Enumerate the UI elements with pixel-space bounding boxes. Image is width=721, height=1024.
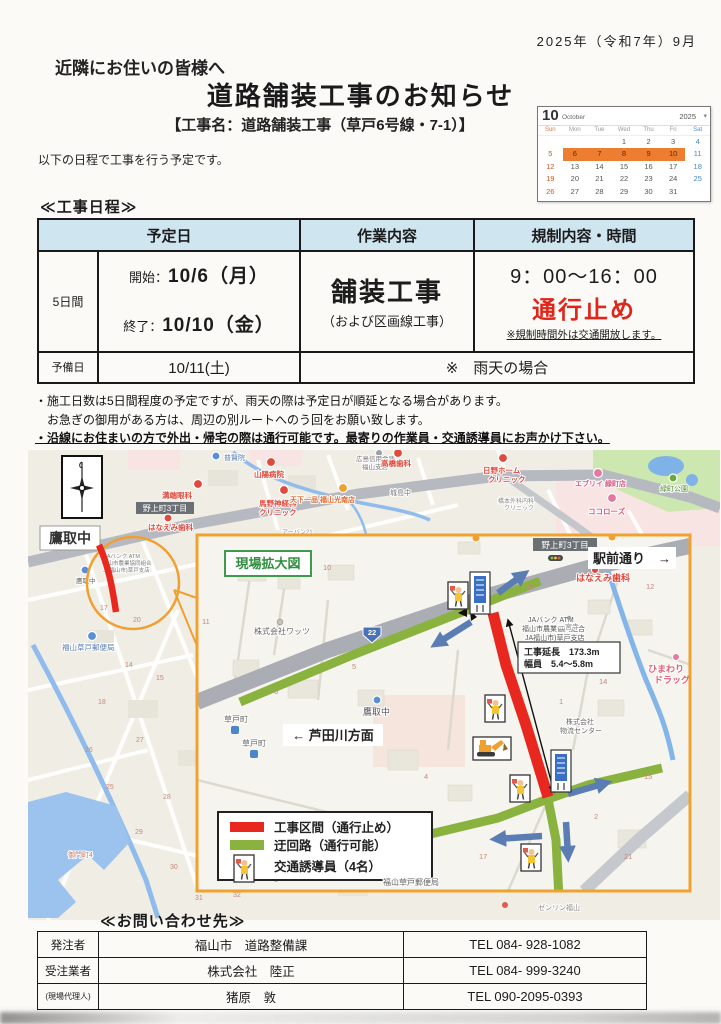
calendar-date: 17 [661, 161, 686, 173]
note-line: お急ぎの御用がある方は、周辺の別ルートへのう回をお願い致します。 [35, 411, 695, 430]
poi-label: 草戸町 [224, 714, 248, 724]
traffic-guard-icon [448, 582, 468, 609]
calendar-date: 15 [612, 161, 637, 173]
poi-label: エブリイ 緑町店 [575, 479, 626, 488]
svg-text:5: 5 [352, 662, 356, 671]
document-date: 2025年（令和7年）9月 [537, 31, 697, 50]
calendar-header: 10 October 2025 ▾ [538, 107, 710, 126]
poi-label: 城島中 [390, 488, 411, 497]
svg-text:21: 21 [624, 852, 632, 861]
compass-icon [62, 456, 102, 518]
svg-text:22: 22 [368, 628, 376, 637]
calendar-date: 22 [612, 173, 637, 185]
calendar-date-highlighted: 10 [661, 148, 686, 160]
svg-text:1: 1 [559, 697, 563, 706]
svg-text:14: 14 [599, 677, 607, 686]
inset-title-box: 現場拡大図 [225, 551, 311, 576]
road-width: 幅員 5.4～5.8m [524, 658, 593, 669]
calendar-date: 27 [563, 186, 588, 198]
svg-text:20: 20 [133, 617, 141, 624]
end-label: 終了： [123, 319, 162, 334]
traffic-guard-icon [485, 695, 505, 722]
calendar-month-number: 10 [542, 107, 559, 124]
contact-role: 受注業者 [38, 958, 99, 984]
calendar-date: 21 [587, 173, 612, 185]
poi-label: 株式会社ワッツ [254, 626, 310, 636]
calendar-date: 18 [685, 161, 710, 173]
bus-stop-icon [250, 750, 258, 758]
commercial-zone [128, 450, 180, 470]
poi-label: ゼンリン福山 [538, 903, 580, 912]
contact-tel: TEL 084- 999-3240 [404, 958, 647, 984]
svg-text:26: 26 [85, 747, 93, 754]
legend-guard-icon [234, 855, 254, 882]
contact-tel: TEL 084- 928-1082 [404, 932, 647, 958]
svg-text:27: 27 [136, 737, 144, 744]
poi-label: 物流センター [560, 726, 602, 735]
contact-row: (現場代理人) 猪原 敦 TEL 090-2095-0393 [38, 984, 647, 1010]
poi-label: 福山草戸郵便局 [62, 642, 115, 652]
svg-text:14: 14 [125, 662, 133, 669]
pond [648, 456, 684, 476]
calendar-dropdown-icon: ▾ [703, 112, 707, 120]
calendar-date: 1 [612, 136, 637, 148]
poi-label: ひまわり [648, 664, 684, 674]
svg-text:4: 4 [424, 772, 428, 781]
poi-label: ココローズ [588, 506, 626, 516]
calendar-date: 23 [636, 173, 661, 185]
poi-label: クリニック [488, 474, 526, 484]
calendar-day-header: Sat [685, 126, 710, 136]
calendar-date: 3 [661, 136, 686, 148]
poi-label: クリニック [259, 507, 297, 517]
note-line-important: ・沿線にお住まいの方で外出・帰宅の際は通行可能です。最寄りの作業員・交通誘導員に… [35, 429, 695, 448]
inset-map: 野上町3丁目 はなえみ歯科 JAバンク ATM 福山市農業協同組合 JA福山市)… [197, 533, 720, 918]
legend-guard-label: 交通誘導員（4名） [274, 859, 381, 874]
svg-text:17: 17 [479, 852, 487, 861]
contact-name: 株式会社 陸正 [99, 958, 404, 984]
road-label: 野上町3丁目 [143, 504, 187, 513]
calendar-date: 31 [661, 186, 686, 198]
calendar-date: 14 [587, 161, 612, 173]
calendar-day-header: Wed [612, 126, 637, 136]
poi-label: 日野ホーム [483, 466, 521, 475]
regulation-hours: 9：00～16：00 [475, 260, 693, 289]
legend-detour-swatch [230, 840, 264, 850]
poi-label: 御門町4 [68, 850, 93, 859]
contact-role: 発注者 [38, 932, 99, 958]
bus-stop-icon [231, 726, 239, 734]
excavator-icon [473, 737, 511, 760]
calendar-date-highlighted: 9 [636, 148, 661, 160]
work-subtype: （および区画線工事） [301, 311, 473, 330]
poi-label: JAバンク ATM [104, 553, 140, 560]
svg-text:25: 25 [106, 784, 114, 791]
reserve-day-label: 予備日 [38, 352, 98, 383]
calendar-date-highlighted: 8 [612, 148, 637, 160]
schedule-heading: ≪工事日程≫ [40, 196, 137, 217]
poi-label: はなえみ歯科 [148, 522, 193, 532]
contact-name: 猪原 敦 [99, 984, 404, 1010]
poi-label: 一宮寺 [558, 622, 579, 631]
svg-text:11: 11 [202, 617, 210, 626]
contact-row: 受注業者 株式会社 陸正 TEL 084- 999-3240 [38, 958, 647, 984]
svg-text:駅前通り →: 駅前通り → [592, 551, 671, 566]
svg-text:現場拡大図: 現場拡大図 [235, 556, 300, 571]
start-date: 10/6（月） [168, 266, 269, 287]
construction-sign-icon [470, 572, 490, 614]
map-svg: 野上町3丁目 普賢院 山陽病院 溝端眼科 馬野神経科 クリニック 天下一品 福山… [28, 450, 720, 920]
legend-closed-swatch [230, 822, 264, 832]
extension-info-box: 工事延長 173.3m 幅員 5.4～5.8m [518, 642, 620, 673]
page: { "header": { "date": "2025年（令和7年）9月", "… [0, 0, 721, 1024]
calendar-month-name: October [562, 114, 585, 121]
end-date: 10/10（金） [162, 315, 275, 336]
svg-text:10: 10 [323, 563, 331, 572]
calendar-day-header: Tue [587, 126, 612, 136]
poi-label: 鷹取中 [76, 576, 96, 585]
poi-marker [673, 654, 680, 661]
extension-length: 工事延長 173.3m [524, 646, 600, 657]
takatori-label: 鷹取中 [49, 530, 91, 546]
svg-text:28: 28 [163, 794, 171, 801]
traffic-guard-icon [510, 775, 530, 802]
poi-label: 普賢院 [224, 453, 245, 462]
calendar-day-header: Thu [636, 126, 661, 136]
reserve-note: ※ 雨天の場合 [300, 352, 694, 383]
poi-label: JA福山市)草戸支店 [525, 633, 585, 642]
traffic-light-icon [548, 555, 563, 561]
calendar-date: 25 [685, 173, 710, 185]
svg-text:17: 17 [100, 605, 108, 612]
traffic-guard-icon [521, 844, 541, 871]
calendar-date: 29 [612, 186, 637, 198]
svg-text:← 芦田川方面: ← 芦田川方面 [292, 728, 374, 743]
calendar-day-header: Fri [661, 126, 686, 136]
notes-block: ・施工日数は5日間程度の予定ですが、雨天の際は予定日が順延となる場合があります。… [35, 392, 695, 448]
calendar-day-header: Mon [563, 126, 588, 136]
calendar-date [685, 186, 710, 198]
calendar-date: 24 [661, 173, 686, 185]
contact-tel: TEL 090-2095-0393 [404, 984, 647, 1010]
calendar-date: 4 [685, 136, 710, 148]
calendar-date [587, 136, 612, 148]
poi-label: 草戸町 [242, 738, 266, 748]
map: 野上町3丁目 普賢院 山陽病院 溝端眼科 馬野神経科 クリニック 天下一品 福山… [28, 450, 720, 920]
poi-label: 株式会社 [566, 717, 594, 726]
intro-line: 以下の日程で工事を行う予定です。 [38, 151, 229, 168]
calendar-date-highlighted: 7 [587, 148, 612, 160]
svg-text:18: 18 [98, 699, 106, 706]
pond [686, 474, 698, 486]
ashida-label-box: ← 芦田川方面 [283, 724, 383, 746]
contact-heading: ≪お問い合わせ先≫ [100, 910, 245, 931]
calendar-date: 11 [685, 148, 710, 160]
calendar-date: 30 [636, 186, 661, 198]
map-legend: 工事区間（通行止め） 迂回路（通行可能） 交通誘導員（4名） [218, 812, 432, 882]
svg-text:15: 15 [644, 772, 652, 781]
poi-label: 福山草戸郵便局 [383, 877, 439, 887]
poi-marker [277, 619, 283, 625]
calendar-date: 16 [636, 161, 661, 173]
poi-label: 高橋歯科 [381, 458, 411, 468]
calendar-date: 20 [563, 173, 588, 185]
svg-text:15: 15 [156, 675, 164, 682]
svg-text:32: 32 [233, 892, 241, 899]
road-closed-text: 通行止め [475, 290, 693, 325]
column-header-date: 予定日 [38, 219, 300, 251]
poi-marker [502, 902, 508, 908]
svg-text:29: 29 [135, 829, 143, 836]
poi-label: 橋本外科内科 [498, 497, 534, 505]
school-marker [373, 696, 381, 704]
ekimae-label-box: 駅前通り → [588, 547, 676, 569]
schedule-table: 予定日 作業内容 規制内容・時間 5日間 開始：10/6（月） 終了：10/10… [37, 218, 695, 384]
poi-label: クリニック [504, 505, 534, 512]
calendar-date [538, 136, 563, 148]
column-header-work: 作業内容 [300, 219, 474, 251]
poi-label: 鷹取中 [363, 706, 390, 717]
construction-sign-icon [551, 750, 571, 792]
contact-role: (現場代理人) [38, 984, 99, 1010]
start-label: 開始： [129, 270, 168, 285]
svg-text:31: 31 [195, 895, 203, 902]
calendar-grid: Sun Mon Tue Wed Thu Fri Sat 1 2 3 4 5 6 … [538, 126, 710, 198]
calendar-date: 19 [538, 173, 563, 185]
calendar-date: 26 [538, 186, 563, 198]
calendar-date: 28 [587, 186, 612, 198]
duration-cell: 5日間 [38, 251, 98, 352]
calendar-date: 13 [563, 161, 588, 173]
calendar-day-header: Sun [538, 126, 563, 136]
poi-label: 溝端眼科 [162, 490, 192, 500]
legend-detour-label: 迂回路（通行可能） [274, 838, 387, 853]
svg-text:13: 13 [526, 582, 534, 591]
poi-label: ドラッグ [654, 674, 690, 685]
svg-text:30: 30 [170, 864, 178, 871]
poi-label: はなえみ歯科 [576, 572, 630, 583]
legend-closed-label: 工事区間（通行止め） [274, 820, 399, 835]
reserve-date: 10/11(土) [98, 352, 300, 383]
calendar-year: 2025 [679, 112, 696, 121]
calendar-date [563, 136, 588, 148]
dates-cell: 開始：10/6（月） 終了：10/10（金） [98, 251, 300, 352]
calendar-date: 2 [636, 136, 661, 148]
calendar: 10 October 2025 ▾ Sun Mon Tue Wed Thu Fr… [537, 106, 711, 202]
svg-text:2: 2 [594, 812, 598, 821]
note-line: ・施工日数は5日間程度の予定ですが、雨天の際は予定日が順延となる場合があります。 [35, 392, 695, 411]
calendar-date: 12 [538, 161, 563, 173]
poi-marker [567, 616, 571, 620]
poi-label: 山陽病院 [254, 469, 284, 479]
contact-name: 福山市 道路整備課 [99, 932, 404, 958]
road-label: 野上町3丁目 [541, 540, 588, 550]
svg-text:6: 6 [274, 687, 278, 696]
calendar-date: 5 [538, 148, 563, 160]
poi-label: 天下一品 福山光南店 [290, 495, 355, 504]
contact-table: 発注者 福山市 道路整備課 TEL 084- 928-1082 受注業者 株式会… [37, 931, 647, 1010]
regulation-note: ※規制時間外は交通開放します。 [475, 327, 693, 342]
contact-row: 発注者 福山市 道路整備課 TEL 084- 928-1082 [38, 932, 647, 958]
scan-artifact [0, 1012, 721, 1024]
work-cell: 舗装工事 （および区画線工事） [300, 251, 474, 352]
calendar-date-highlighted: 6 [563, 148, 588, 160]
work-type: 舗装工事 [301, 272, 473, 309]
poi-label: 緑町公園 [660, 484, 688, 493]
svg-text:12: 12 [646, 582, 654, 591]
regulation-cell: 9：00～16：00 通行止め ※規制時間外は交通開放します。 [474, 251, 694, 352]
column-header-regulation: 規制内容・時間 [474, 219, 694, 251]
